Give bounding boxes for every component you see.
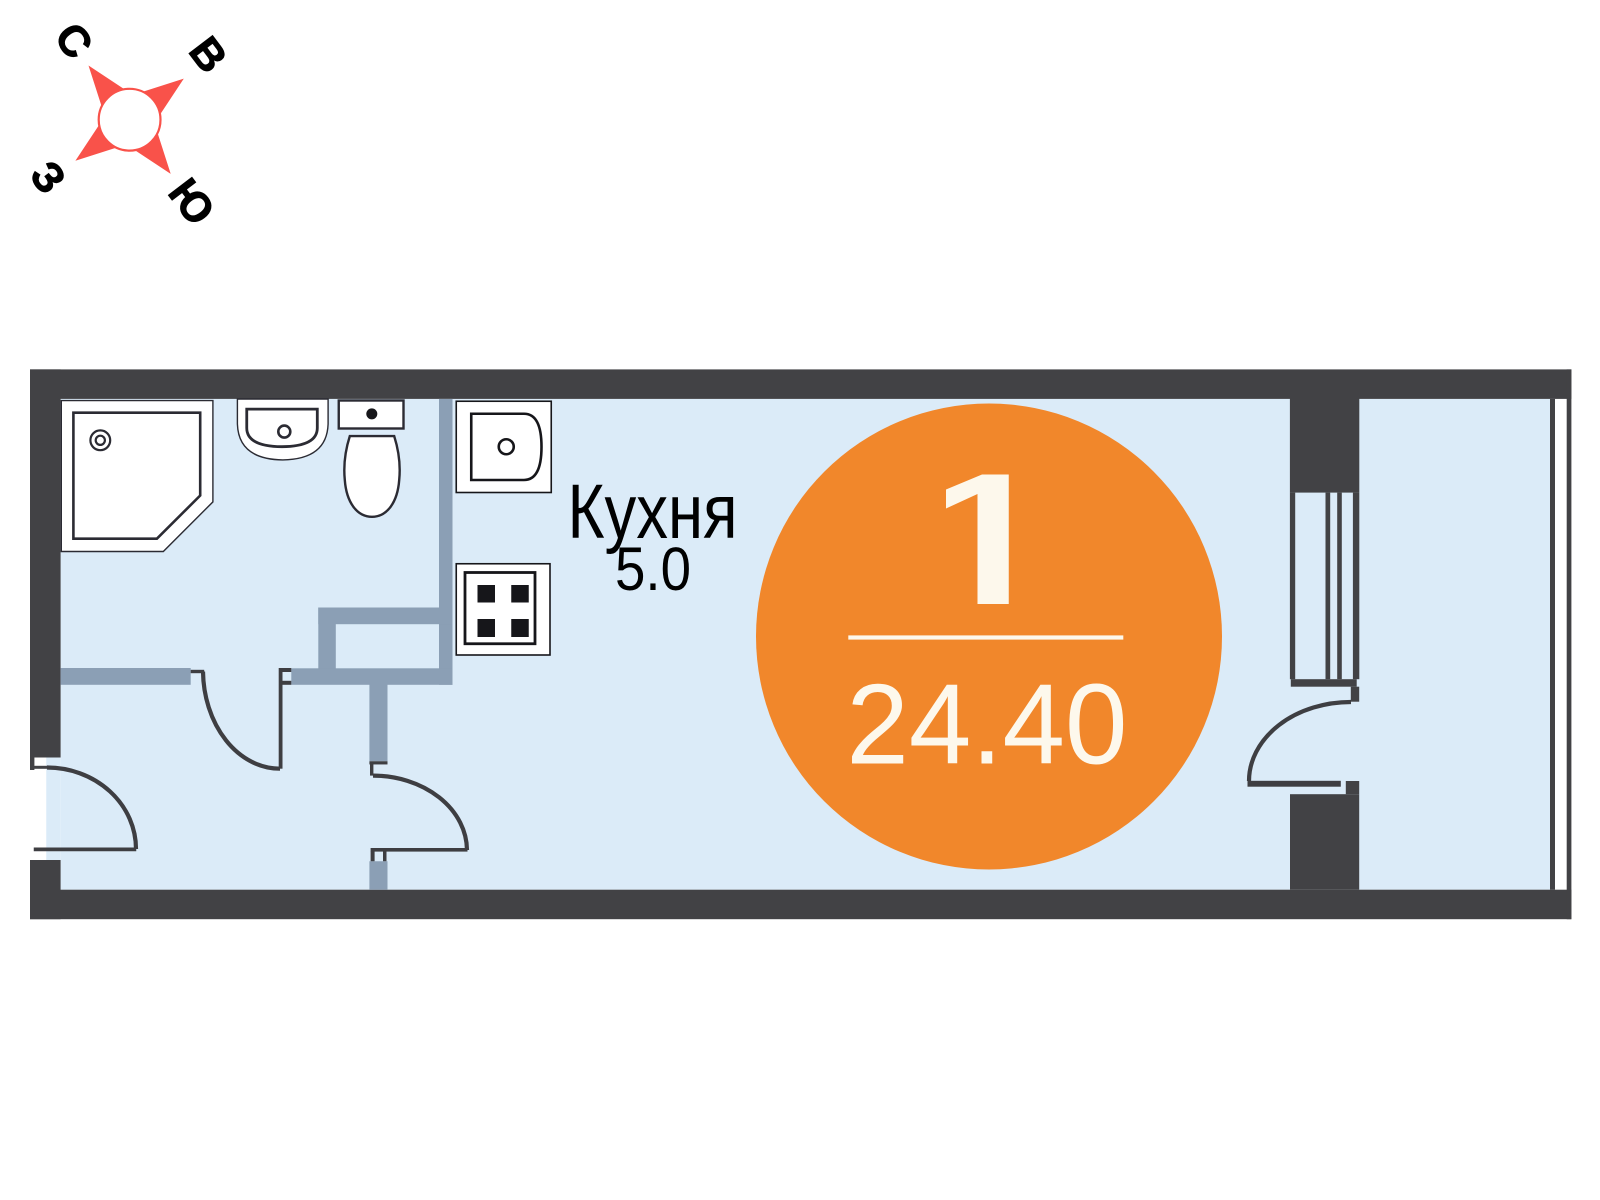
svg-text:5.0: 5.0 — [615, 535, 691, 603]
svg-text:24.40: 24.40 — [846, 662, 1127, 789]
